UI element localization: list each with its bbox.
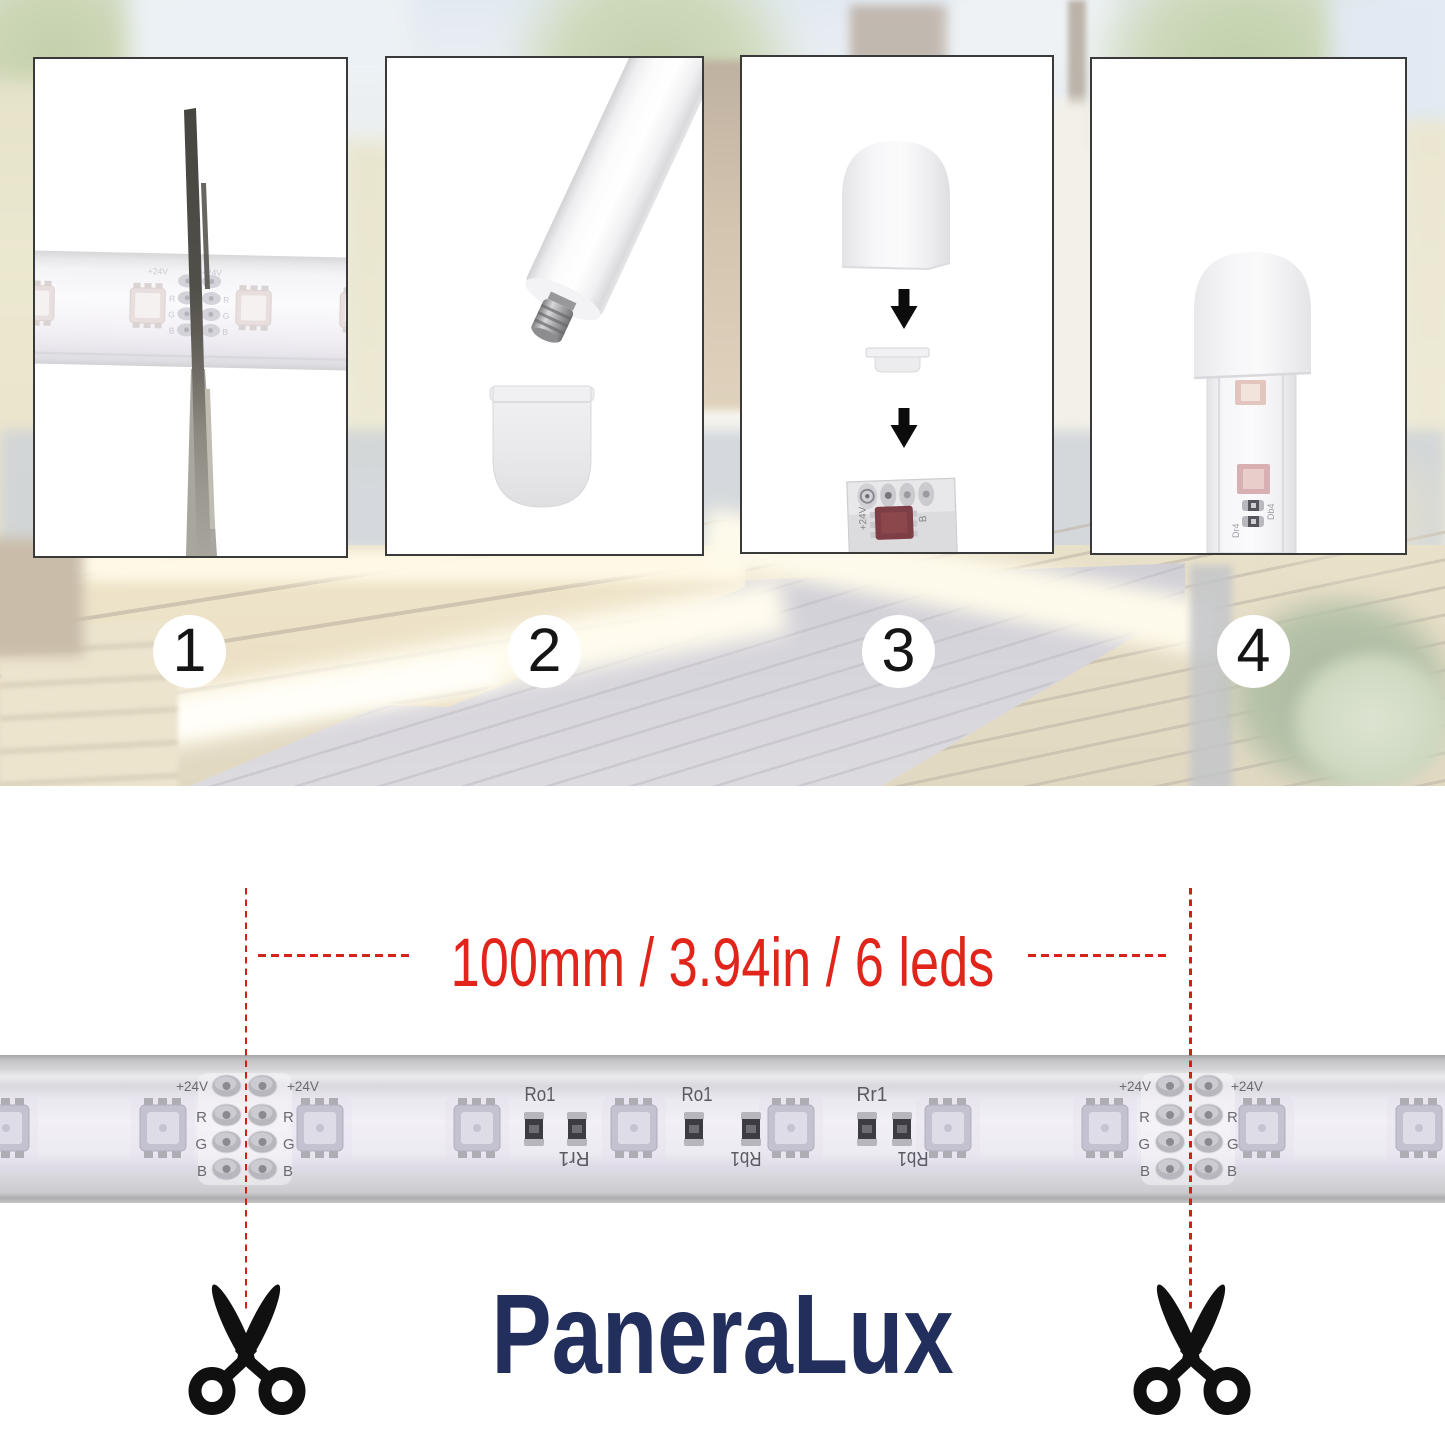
svg-text:+24V: +24V xyxy=(1231,1079,1263,1094)
svg-text:B: B xyxy=(1227,1163,1237,1180)
svg-text:R: R xyxy=(223,295,229,305)
svg-text:Ro1: Ro1 xyxy=(525,1084,556,1106)
svg-text:Dr4: Dr4 xyxy=(1231,523,1241,538)
svg-text:B: B xyxy=(1140,1163,1150,1180)
svg-text:B: B xyxy=(197,1163,207,1180)
svg-text:+24V: +24V xyxy=(176,1079,208,1094)
svg-text:Rb1: Rb1 xyxy=(731,1147,762,1169)
svg-text:B: B xyxy=(283,1163,293,1180)
svg-text:G: G xyxy=(223,311,230,321)
svg-text:G: G xyxy=(1138,1136,1150,1153)
svg-text:B: B xyxy=(169,326,175,336)
svg-text:G: G xyxy=(195,1136,207,1153)
svg-text:+24V: +24V xyxy=(1119,1079,1151,1094)
svg-text:Rr1: Rr1 xyxy=(857,1084,888,1106)
svg-text:B: B xyxy=(918,515,929,522)
svg-text:+24V: +24V xyxy=(858,506,870,530)
svg-text:G: G xyxy=(283,1136,295,1153)
svg-text:G: G xyxy=(1227,1136,1239,1153)
svg-text:R: R xyxy=(283,1109,294,1126)
svg-text:Rr1: Rr1 xyxy=(559,1147,590,1169)
svg-text:R: R xyxy=(169,294,175,304)
svg-text:Ro1: Ro1 xyxy=(682,1084,713,1106)
svg-text:Rb1: Rb1 xyxy=(898,1147,929,1169)
svg-text:R: R xyxy=(1227,1109,1238,1126)
svg-text:Db4: Db4 xyxy=(1266,503,1276,520)
svg-text:R: R xyxy=(1139,1109,1150,1126)
svg-text:B: B xyxy=(222,327,228,337)
svg-text:R: R xyxy=(196,1109,207,1126)
svg-text:G: G xyxy=(168,310,175,320)
svg-text:+24V: +24V xyxy=(287,1079,319,1094)
svg-text:+24V: +24V xyxy=(148,266,169,276)
